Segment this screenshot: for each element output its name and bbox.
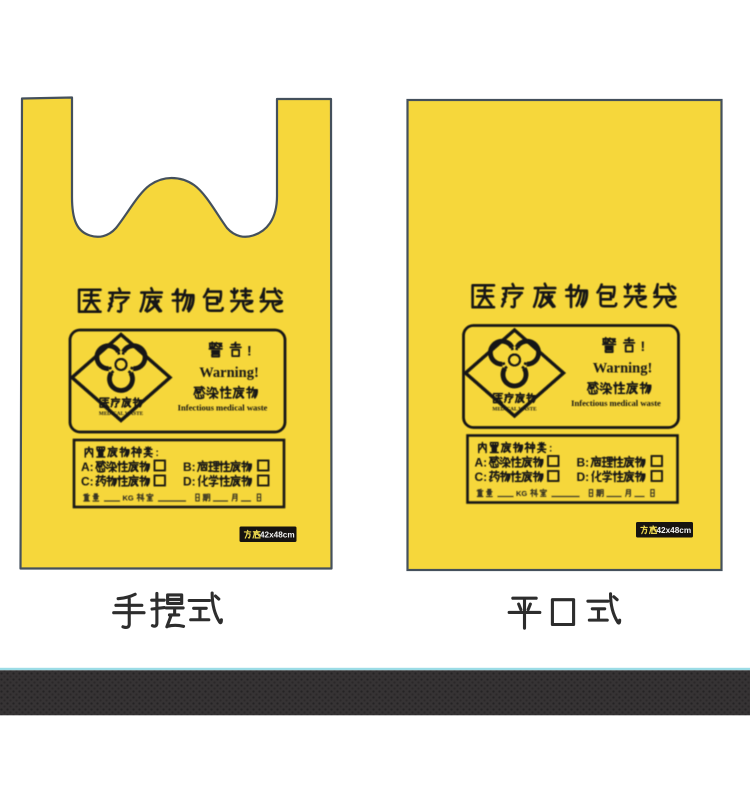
svg-text:Infectious medical waste: Infectious medical waste	[571, 398, 661, 408]
svg-text::: :	[156, 448, 159, 459]
svg-text:Infectious medical waste: Infectious medical waste	[178, 403, 268, 413]
svg-text:MEDICAL WASTE: MEDICAL WASTE	[99, 411, 144, 417]
svg-text:KG: KG	[516, 489, 527, 498]
svg-text:42x48cm: 42x48cm	[260, 531, 295, 540]
svg-text:42x48cm: 42x48cm	[657, 526, 692, 535]
svg-text:C:: C:	[475, 470, 488, 484]
svg-text::: :	[549, 444, 552, 455]
svg-text:B:: B:	[183, 460, 196, 474]
svg-text:D:: D:	[183, 475, 196, 489]
svg-text:B:: B:	[577, 456, 590, 470]
svg-text:!: !	[247, 343, 252, 359]
svg-text:KG: KG	[123, 494, 134, 503]
svg-text:A:: A:	[81, 460, 94, 474]
svg-text:Warning!: Warning!	[199, 365, 259, 381]
svg-text:MEDICAL WASTE: MEDICAL WASTE	[492, 406, 537, 412]
svg-text:!: !	[641, 338, 646, 354]
svg-text:Warning!: Warning!	[593, 361, 653, 377]
svg-text:C:: C:	[81, 475, 94, 489]
svg-text:D:: D:	[577, 470, 590, 484]
svg-text:A:: A:	[475, 456, 488, 470]
